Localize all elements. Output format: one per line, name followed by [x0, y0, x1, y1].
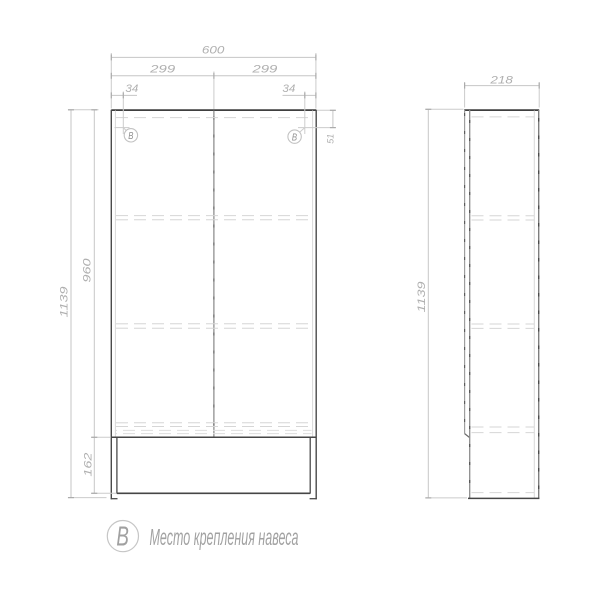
svg-text:299: 299: [149, 64, 175, 76]
svg-text:B: B: [116, 521, 129, 552]
svg-text:51: 51: [326, 134, 337, 144]
svg-text:1139: 1139: [58, 287, 70, 318]
svg-text:B: B: [292, 131, 297, 143]
svg-text:34: 34: [125, 83, 138, 95]
svg-text:299: 299: [251, 64, 277, 76]
svg-text:Место крепления навеса: Место крепления навеса: [150, 524, 299, 550]
svg-text:218: 218: [489, 74, 514, 86]
svg-text:600: 600: [202, 44, 226, 56]
svg-text:960: 960: [82, 257, 94, 282]
svg-text:1139: 1139: [416, 282, 428, 313]
svg-text:B: B: [128, 130, 133, 142]
svg-text:34: 34: [282, 83, 295, 95]
svg-text:162: 162: [83, 453, 95, 477]
